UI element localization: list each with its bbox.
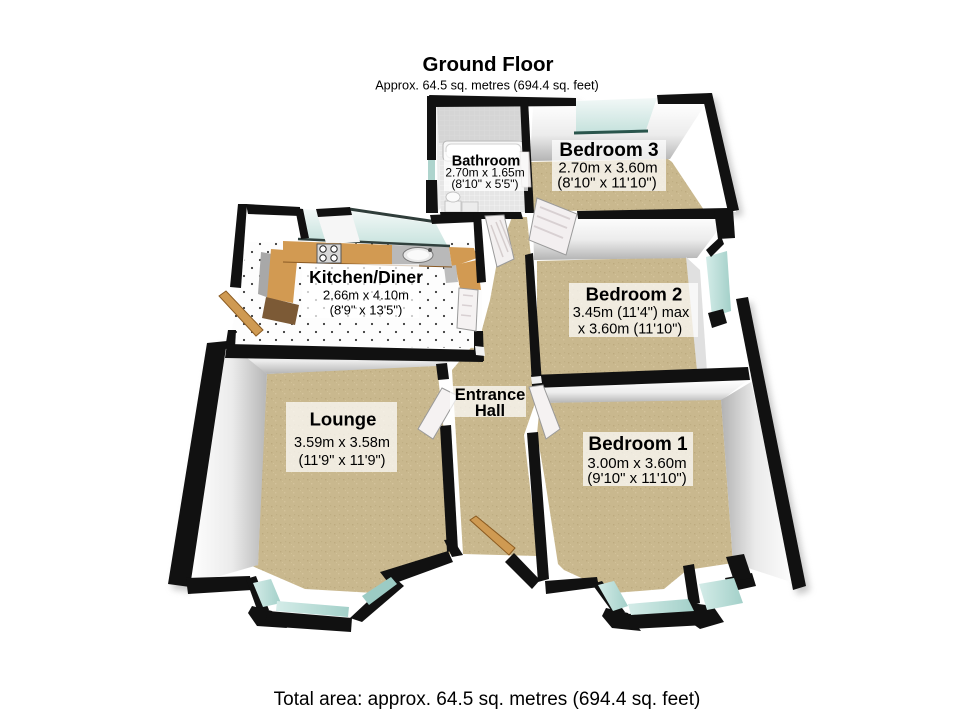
svg-text:Total area: approx. 64.5 sq. m: Total area: approx. 64.5 sq. metres (694… [274,689,701,710]
svg-text:(8'10" x 5'5"): (8'10" x 5'5") [451,177,518,191]
svg-text:Approx. 64.5 sq. metres (694.4: Approx. 64.5 sq. metres (694.4 sq. feet) [375,79,599,93]
svg-text:Bedroom 2: Bedroom 2 [586,284,683,305]
svg-text:(11'9" x 11'9"): (11'9" x 11'9") [298,453,385,469]
svg-text:Kitchen/Diner: Kitchen/Diner [309,267,423,287]
svg-text:Bedroom 3: Bedroom 3 [559,140,658,161]
svg-text:3.45m (11'4") max: 3.45m (11'4") max [573,305,690,321]
svg-text:(9'10" x 11'10"): (9'10" x 11'10") [587,470,687,487]
svg-text:3.59m x 3.58m: 3.59m x 3.58m [294,435,390,451]
svg-text:(8'10" x 11'10"): (8'10" x 11'10") [557,175,657,192]
svg-text:Hall: Hall [475,402,505,420]
svg-text:2.66m x 4.10m: 2.66m x 4.10m [323,288,409,303]
svg-text:Lounge: Lounge [310,409,377,430]
svg-text:x 3.60m (11'10"): x 3.60m (11'10") [578,322,682,338]
svg-text:Ground Floor: Ground Floor [423,53,554,76]
svg-text:(8'9" x 13'5"): (8'9" x 13'5") [330,303,403,318]
svg-text:Bedroom 1: Bedroom 1 [588,434,688,455]
